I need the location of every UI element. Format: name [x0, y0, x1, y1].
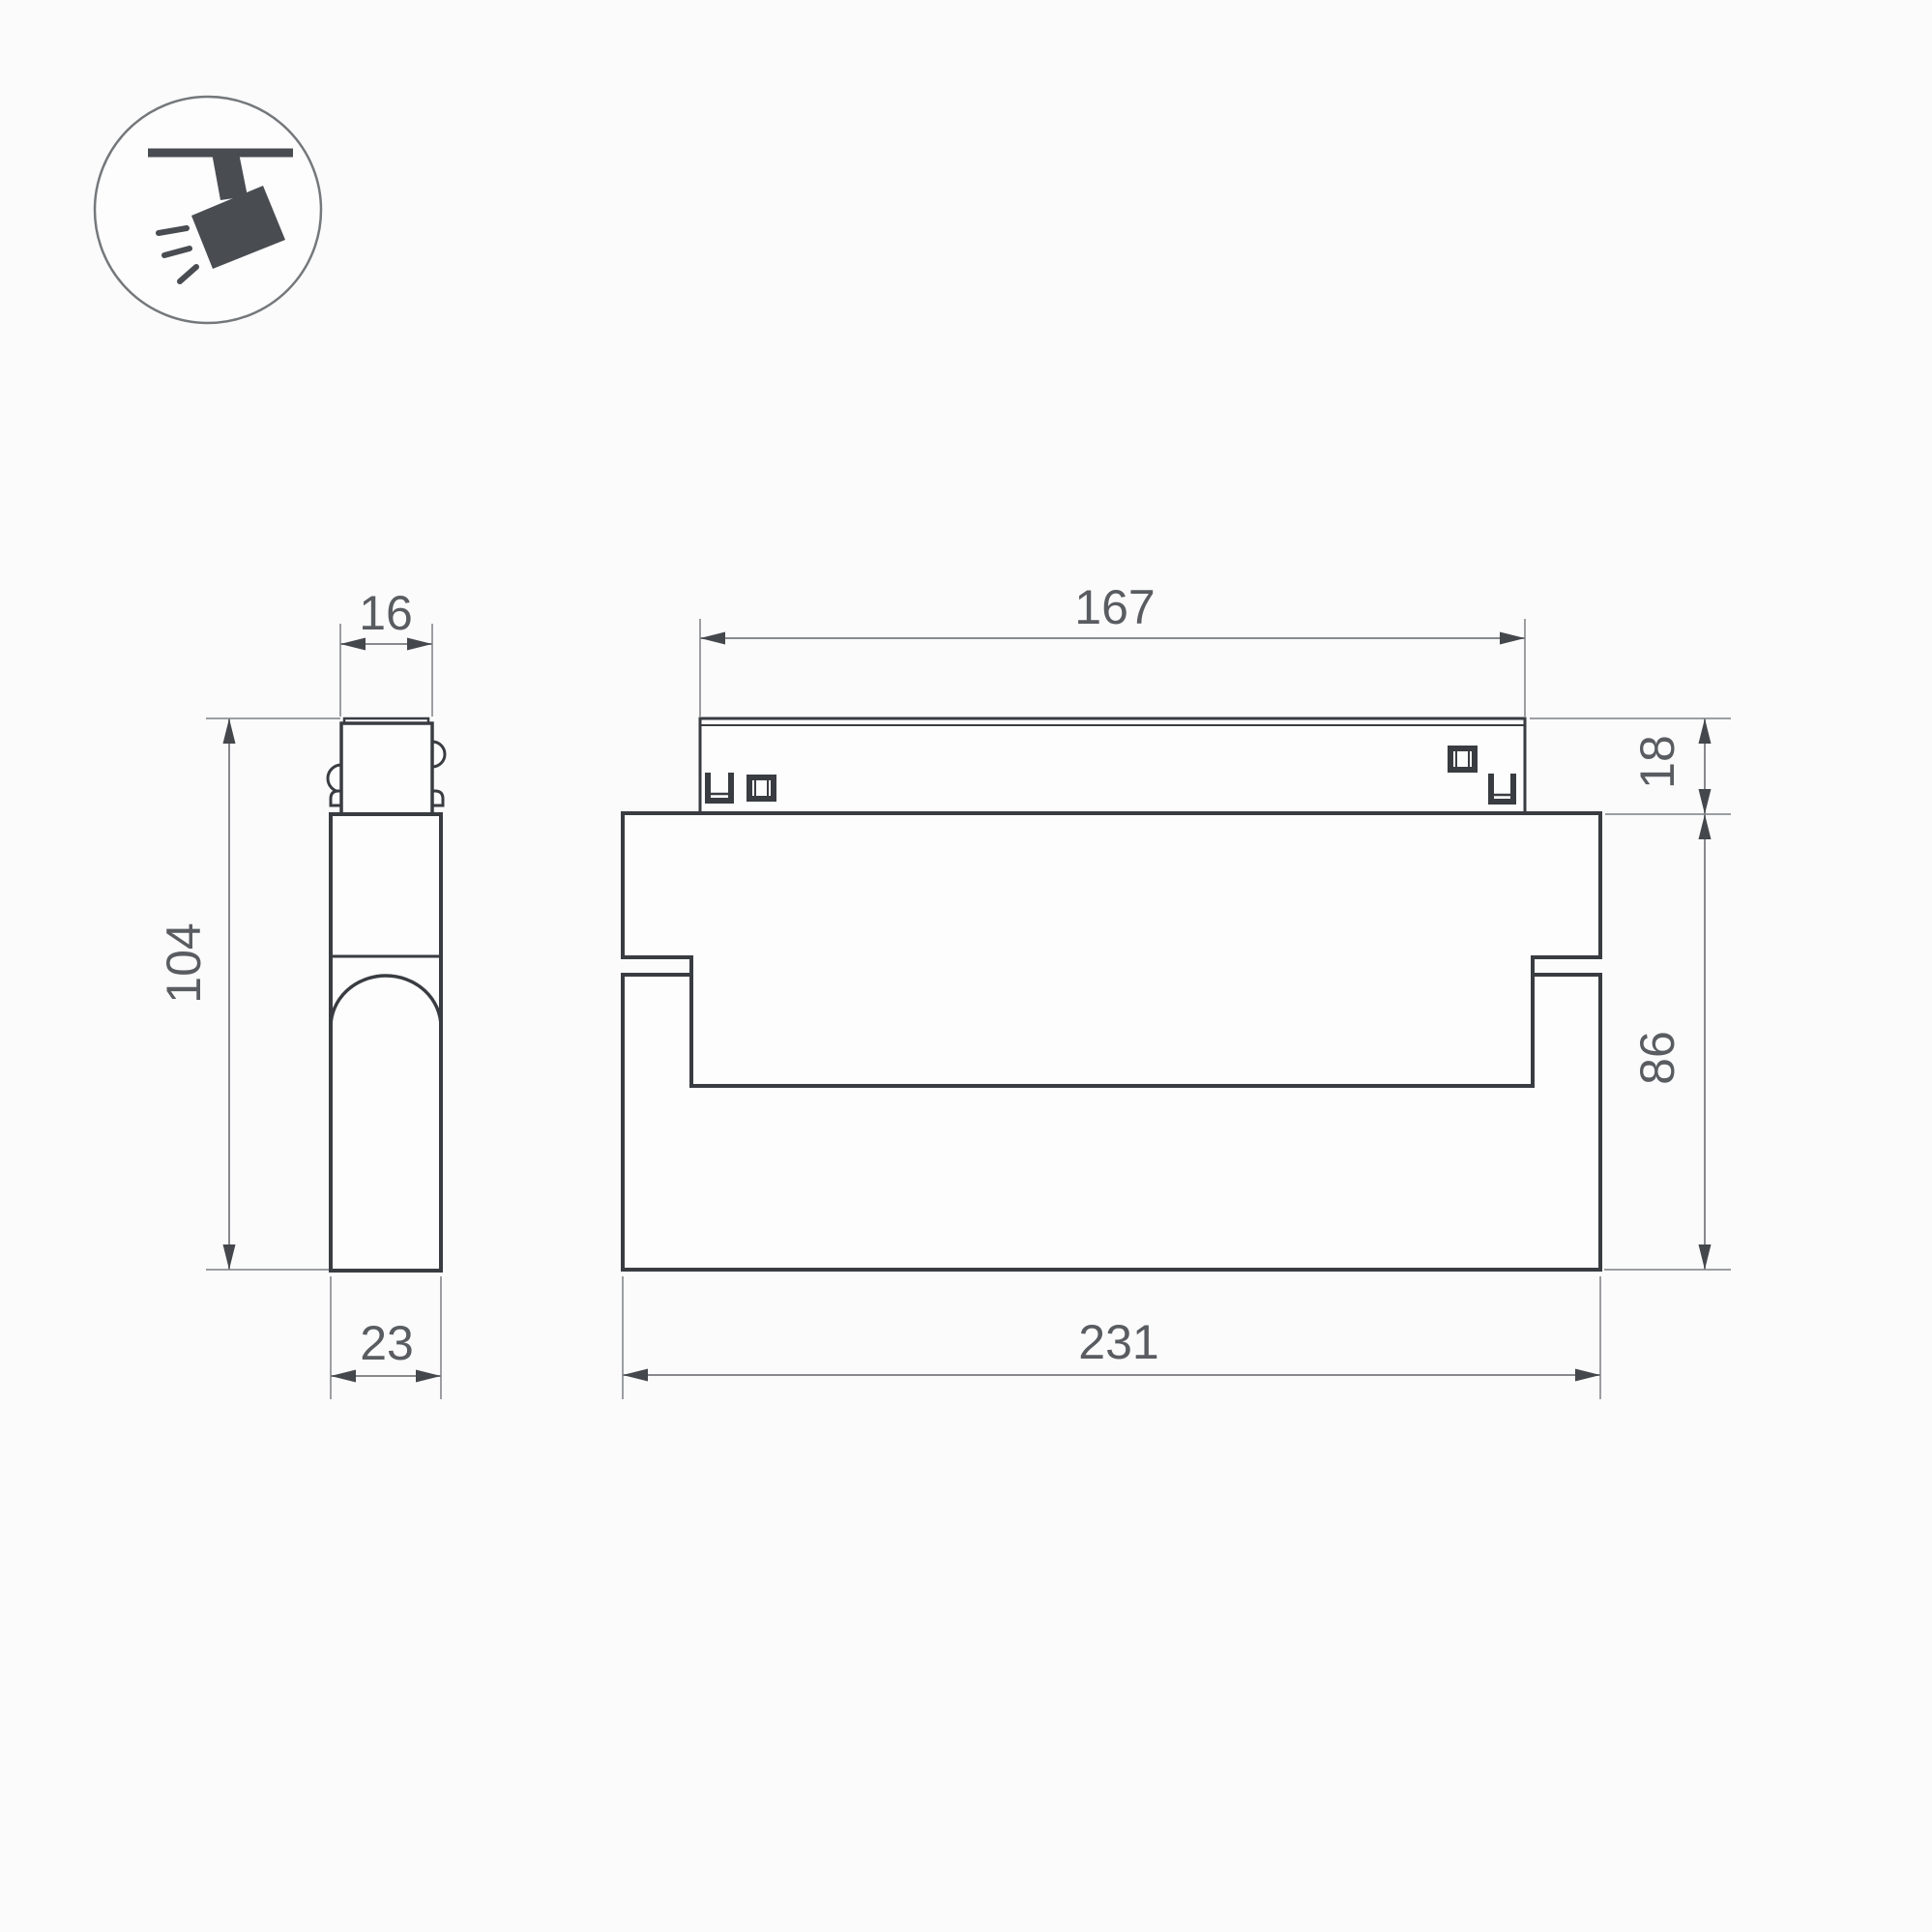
dimension-front-track-height: 18: [1630, 718, 1712, 814]
side-body-outline: [331, 814, 441, 1271]
dim-18-arrow-bottom: [1699, 789, 1712, 814]
dim-104-arrow-top: [223, 718, 236, 744]
dim-104-arrow-bottom: [223, 1244, 236, 1270]
dim-231-label: 231: [1078, 1315, 1158, 1369]
dim-16-label: 16: [359, 586, 413, 640]
side-adapter-left-bulge: [328, 765, 341, 792]
dimension-front-total-width: 231: [623, 1315, 1600, 1382]
dim-86-arrow-top: [1699, 814, 1712, 839]
dim-23-label: 23: [360, 1316, 414, 1370]
dimension-front-body-height: 86: [1630, 814, 1712, 1270]
dimension-drawing: 16 104 23 167 18 86 231: [0, 0, 1932, 1932]
dim-167-arrow-left: [700, 632, 725, 645]
front-upper-body: [623, 813, 1600, 1086]
side-adapter-right-bulge: [432, 742, 445, 767]
front-view: [623, 718, 1600, 1270]
product-icon: [95, 97, 321, 323]
dimension-side-bottom-width: 23: [331, 1316, 441, 1383]
dim-231-arrow-left: [623, 1369, 648, 1382]
dimension-front-top-width: 167: [700, 580, 1525, 645]
dimension-side-height: 104: [157, 718, 236, 1270]
front-track-strip: [700, 718, 1525, 814]
dim-104-label: 104: [157, 922, 211, 1003]
side-adapter-block: [341, 723, 432, 814]
dim-167-arrow-right: [1500, 632, 1525, 645]
technical-drawing-page: 16 104 23 167 18 86 231: [0, 0, 1932, 1932]
dim-86-label: 86: [1630, 1031, 1684, 1085]
dim-18-arrow-top: [1699, 718, 1712, 744]
dim-167-label: 167: [1074, 580, 1155, 634]
dim-23-arrow-left: [331, 1370, 356, 1383]
dim-86-arrow-bottom: [1699, 1244, 1712, 1270]
dim-18-label: 18: [1630, 735, 1684, 789]
dim-23-arrow-right: [416, 1370, 441, 1383]
dim-231-arrow-right: [1575, 1369, 1600, 1382]
dimension-side-top-width: 16: [340, 586, 432, 651]
side-view: [328, 718, 445, 1271]
